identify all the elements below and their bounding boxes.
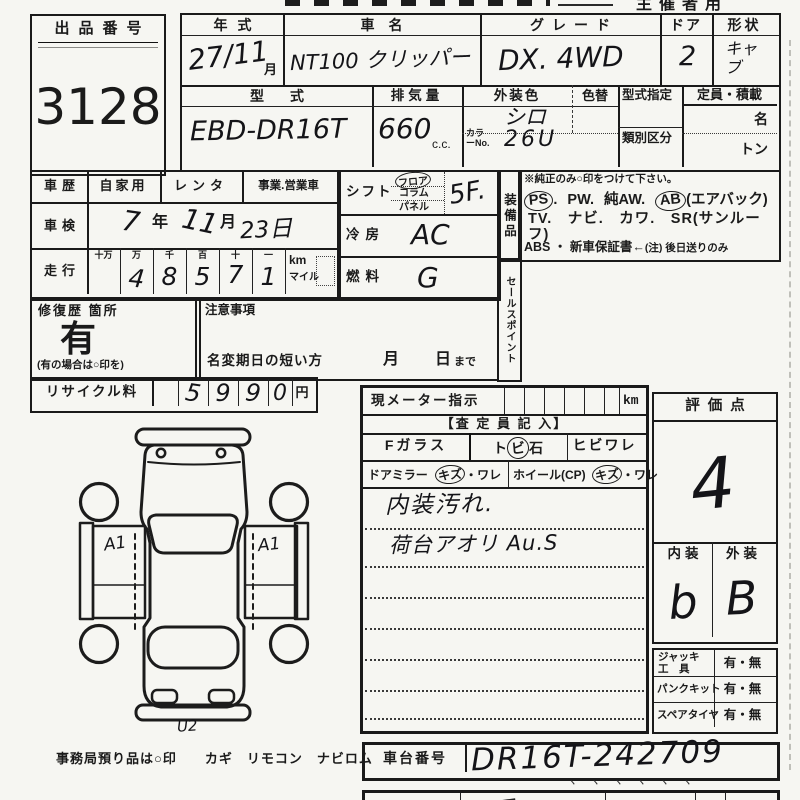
door-label: ドア <box>660 18 712 33</box>
divider <box>584 388 585 414</box>
equipment-line1: PS. PW. 純AW. AB(エアバック) <box>524 188 768 211</box>
cutoff-title-underline <box>558 4 613 6</box>
exterior-color-value: シロ <box>504 107 546 128</box>
mileage-h-10k: 万 <box>120 251 153 261</box>
rating-value: 4 <box>651 443 775 525</box>
sales-point-vertical-label: セールスポイント <box>502 276 517 364</box>
damage-mark-left: A1 <box>103 535 128 555</box>
recycle-unit: 円 <box>292 386 312 400</box>
mirror-kizu-circled: キズ <box>434 464 466 486</box>
model-value: EBD-DR16T <box>190 116 347 146</box>
crack-label: ヒビワレ <box>567 438 642 453</box>
divider <box>444 172 445 214</box>
displacement-label: 排気量 <box>372 89 462 104</box>
name-value: NT100 クリッパー <box>290 47 471 74</box>
equipment-ab-suffix: (エアバック) <box>686 192 768 208</box>
chassis-value: DR16T-242709 <box>471 737 725 777</box>
shaken-month: 11 <box>179 205 220 240</box>
puncture-kit-value: 有・無 <box>714 683 771 697</box>
divider <box>87 202 89 248</box>
divider <box>654 420 776 422</box>
damage-mark-bottom: U2 <box>177 718 199 734</box>
meter-unit: km <box>623 394 639 408</box>
vehicle-diagram <box>60 422 338 734</box>
tail-lamp-right <box>209 690 234 703</box>
divider <box>182 106 618 107</box>
wheel-kizu-circled: キズ <box>591 464 623 486</box>
damage-mark-right: A1 <box>257 536 281 555</box>
truck-top-view <box>80 429 308 720</box>
hood-line <box>148 462 240 465</box>
divider <box>365 659 644 661</box>
vehicle-table: 年式 車名 グレード ドア 形状 27/11 月 NT100 クリッパー DX.… <box>180 13 781 172</box>
repair-value: 有 <box>60 319 96 359</box>
divider <box>365 566 644 568</box>
grade-label: グレード <box>480 18 660 33</box>
divider <box>654 542 776 544</box>
divider <box>38 42 158 48</box>
capacity-load-unit: トン <box>682 142 768 157</box>
divider <box>619 388 620 414</box>
repair-note: (有の場合は○印を) <box>37 360 124 372</box>
exterior-label: 外装 <box>712 547 771 562</box>
puncture-kit-label: パンクキット <box>657 684 721 696</box>
type-designation-label: 型式指定 <box>622 89 672 103</box>
divider <box>654 676 776 677</box>
divider <box>365 628 644 630</box>
exterior-value: B <box>711 573 772 622</box>
history-rental: レンタ <box>160 179 242 193</box>
paper-edge-dashes <box>789 40 791 770</box>
hood-latch-right <box>217 449 225 457</box>
caution-box: 注意事項 名変期日の短い方 月 日 まで <box>195 297 499 381</box>
recycle-d1: 5 <box>176 379 209 407</box>
divider <box>618 85 620 167</box>
jack-tools-value: 有・無 <box>714 657 771 671</box>
recycle-label: リサイクル料 <box>32 385 152 400</box>
capacity-label: 定員・積載 <box>682 88 777 102</box>
shaken-day: 23日 <box>239 218 292 244</box>
mileage-d-100: 5 <box>186 264 219 289</box>
shaken-label: 車検 <box>32 219 87 233</box>
divider <box>544 388 545 414</box>
stone-circled: ビ <box>506 436 530 460</box>
divider <box>285 248 286 294</box>
meter-label: 現メーター指示 <box>371 394 480 409</box>
divider <box>504 388 505 414</box>
mileage-d-1: 1 <box>252 264 285 289</box>
divider <box>363 487 646 489</box>
accessories-box: ジャッキ工 具 有・無 パンクキット 有・無 スペアタイヤ 有・無 <box>652 648 778 734</box>
shift-floor-option: フロア <box>395 172 431 189</box>
equipment-note: ※純正のみ○印をつけて下さい。 <box>524 174 677 186</box>
divider <box>695 793 696 800</box>
front-bumper <box>136 429 250 445</box>
recycle-d2: 9 <box>208 381 238 405</box>
color-change-label: 色替 <box>572 89 618 103</box>
equipment-sep: . <box>553 192 557 208</box>
history-table: 車歴 自家用 レンタ 事業.営業車 車検 7 年 11 月 23日 走行 十万 … <box>30 170 341 301</box>
divider <box>391 200 444 201</box>
divider <box>508 460 509 487</box>
wheel-cell: ホイール(CP) キズ・ワレ <box>513 465 658 484</box>
stone-pre: ト <box>493 440 507 456</box>
tail-lamp-left <box>152 690 177 703</box>
ac-label: 冷房 <box>346 228 385 243</box>
wheel-label: ホイール(CP) <box>513 468 586 482</box>
auction-sheet: 主催者用 出品番号 3128 年式 車名 グレード ドア 形状 27/11 月 … <box>0 0 800 800</box>
year-unit: 月 <box>264 63 277 77</box>
recycle-fee-row: リサイクル料 5 9 9 0 円 <box>30 377 318 413</box>
divider <box>465 745 467 772</box>
ac-value: AC <box>411 221 450 249</box>
divider <box>524 388 525 414</box>
shaken-year-unit: 年 <box>152 214 168 232</box>
divider <box>152 379 154 406</box>
rear-window <box>148 627 238 668</box>
rename-month-unit: 月 <box>383 351 399 369</box>
divider <box>460 793 461 800</box>
equipment-pw: PW. <box>567 192 594 208</box>
interior-label: 内装 <box>654 547 712 562</box>
mileage-d-1k: 8 <box>153 264 186 289</box>
divider <box>725 793 726 800</box>
caution-label: 注意事項 <box>205 304 255 318</box>
divider <box>339 214 499 216</box>
mileage-h-100k: 十万 <box>87 251 120 261</box>
divider <box>605 793 606 800</box>
equipment-line3: ABS ・ 新車保証書←(注) 後日送りのみ <box>524 236 728 255</box>
divider <box>564 388 565 414</box>
fuel-value: G <box>417 264 439 292</box>
divider <box>654 702 776 703</box>
equipment-vertical-label: 装備品 <box>500 193 519 240</box>
wheel-rear-right <box>271 626 308 663</box>
mirror-label: ドアミラー <box>368 468 428 482</box>
fuel-label: 燃料 <box>346 270 385 285</box>
equipment-aw: 純AW. <box>604 192 645 208</box>
spare-tire-value: 有・無 <box>714 709 771 723</box>
divider <box>572 85 573 133</box>
office-note: 事務局預り品は○印 カギ リモコン ナビロム <box>56 752 373 766</box>
shift-label: シフト <box>346 185 393 200</box>
mileage-h-100: 百 <box>186 251 219 261</box>
shaken-month-unit: 月 <box>220 214 236 232</box>
bottom-cutoff-table <box>362 790 780 800</box>
capacity-persons-unit: 名 <box>682 112 768 127</box>
shape-value: キャブ <box>725 39 761 77</box>
divider <box>365 718 644 720</box>
divider <box>604 388 605 414</box>
mileage-unit-checkbox <box>316 256 335 286</box>
hood-latch-left <box>157 449 165 457</box>
rename-until: まで <box>454 356 476 368</box>
assessor-note-2: 荷台アオリ Au.S <box>389 533 559 557</box>
mirror-ware: ・ワレ <box>465 468 501 482</box>
color-no-label: カラーNo. <box>466 129 492 149</box>
equipment-warranty-note: (注) 後日送りのみ <box>645 242 728 254</box>
divider <box>182 85 779 87</box>
divider <box>365 690 644 692</box>
mirror-cell: ドアミラー キズ・ワレ <box>368 465 501 484</box>
lot-number-value: 3128 <box>32 78 164 136</box>
left-side-rail <box>80 523 93 619</box>
chassis-check-ticks: 丶丶丶丶丶丶 <box>566 778 704 789</box>
rating-label: 評価点 <box>654 399 776 415</box>
mileage-d-10k: 4 <box>119 264 154 292</box>
mileage-d-10: 7 <box>219 262 252 287</box>
rating-box: 評価点 4 内装 外装 b B <box>652 392 778 644</box>
mileage-unit-km: km <box>289 254 306 267</box>
exterior-color-label: 外装色 <box>462 89 572 104</box>
divider <box>618 127 682 128</box>
shift-value: 5F. <box>447 177 487 209</box>
jack-tools-label: ジャッキ工 具 <box>658 652 699 675</box>
color-no-value: 26U <box>504 129 557 151</box>
stone-chip-cell: トビ石 <box>469 437 567 459</box>
rename-deadline-label: 名変期日の短い方 <box>207 354 323 369</box>
wheel-rear-left <box>81 626 118 663</box>
model-label: 型式 <box>182 89 372 104</box>
door-value: 2 <box>679 43 696 70</box>
year-value: 27/11 <box>187 37 271 75</box>
equipment-ps: PS <box>523 190 554 212</box>
assessor-section-title: 【査 定 員 記 入】 <box>363 417 646 431</box>
assessor-note-1: 内装汚れ. <box>385 493 495 518</box>
displacement-value: 660 <box>378 115 431 143</box>
divider <box>339 256 499 258</box>
organizer-label: 主催者用 <box>636 0 728 14</box>
equipment-box: ※純正のみ○印をつけて下さい。 PS. PW. 純AW. AB(エアバック) T… <box>518 170 781 262</box>
mileage-h-1: 一 <box>252 251 285 261</box>
divider <box>365 597 644 599</box>
divider <box>365 528 644 530</box>
interior-value: b <box>652 577 713 627</box>
equipment-ab: AB <box>654 190 687 213</box>
shift-column-option: コラム <box>399 188 429 199</box>
grade-value: DX. 4WD <box>498 43 625 75</box>
sales-point-strip: セールスポイント <box>497 258 522 382</box>
specs-table: シフト フロア コラム パネル 5F. 冷房 AC 燃料 G <box>337 170 501 301</box>
history-business: 事業.営業車 <box>242 180 335 193</box>
rename-day-unit: 日 <box>435 351 451 369</box>
shaken-year: 7 <box>120 207 142 237</box>
mileage-unit-mile: マイル <box>289 272 319 283</box>
wheel-front-left <box>81 484 118 521</box>
spare-tire-label: スペアタイヤ <box>657 710 719 722</box>
handwriting-fragment <box>475 792 516 800</box>
wheel-front-right <box>271 484 308 521</box>
divider <box>363 460 646 462</box>
shift-panel-option: パネル <box>399 202 429 213</box>
cutoff-title-fragments <box>285 0 550 6</box>
class-division-label: 類別区分 <box>622 132 672 146</box>
recycle-d4: 0 <box>268 383 292 405</box>
windshield <box>149 515 238 553</box>
stone-post: 石 <box>529 440 543 456</box>
repair-box: 修復歴 箇所 有 (有の場合は○印を) <box>30 297 201 381</box>
inspection-box: 現メーター指示 km 【査 定 員 記 入】 Fガラス トビ石 ヒビワレ ドアミ… <box>360 385 649 734</box>
lot-number-label: 出品番号 <box>32 21 164 38</box>
shape-label: 形状 <box>712 18 777 33</box>
glass-label: Fガラス <box>363 438 469 453</box>
equipment-abs: ABS ・ 新車保証書← <box>524 240 645 254</box>
repair-label: 修復歴 箇所 <box>38 304 119 318</box>
divider <box>682 133 777 134</box>
history-label: 車歴 <box>32 179 87 193</box>
displacement-unit: c.c. <box>432 137 451 151</box>
divider <box>682 104 777 106</box>
year-label: 年式 <box>182 18 283 33</box>
recycle-d3: 9 <box>237 379 269 406</box>
chassis-label: 車台番号 <box>365 751 465 766</box>
name-label: 車名 <box>283 18 480 33</box>
chassis-number-row: 車台番号 DR16T-242709 <box>362 742 780 781</box>
mileage-h-1k: 千 <box>153 251 186 261</box>
mileage-label: 走行 <box>32 264 87 278</box>
history-private: 自家用 <box>87 179 160 193</box>
lot-number-box: 出品番号 3128 <box>30 14 166 176</box>
